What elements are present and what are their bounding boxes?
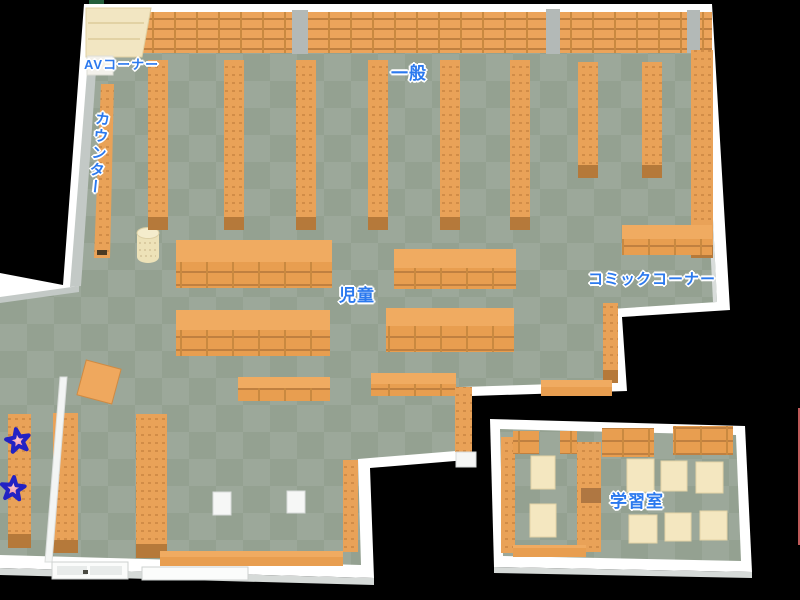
low-shelf — [176, 240, 332, 288]
bookshelf-row — [455, 387, 472, 452]
study-table — [661, 461, 687, 491]
bookshelf-row — [642, 62, 662, 178]
av-shelf — [86, 8, 151, 57]
label-av-corner: AVコーナー — [84, 54, 159, 73]
door-handle — [83, 570, 88, 574]
bookshelf-row — [501, 437, 515, 553]
low-shelf — [176, 310, 330, 356]
return-slot — [97, 250, 107, 255]
comic-shelf — [603, 303, 618, 383]
bookshelf-row — [136, 414, 167, 558]
study-table — [665, 513, 691, 541]
comic-shelf — [541, 380, 612, 396]
pillar — [546, 9, 560, 54]
bookshelf-row — [148, 60, 168, 230]
white-box — [213, 492, 231, 515]
bookshelf — [560, 431, 577, 454]
bookshelf — [673, 426, 733, 455]
bookshelf-row — [440, 60, 460, 230]
study-table — [531, 456, 555, 489]
bookshelf — [602, 428, 654, 457]
label-study-room: 学習室 — [610, 487, 664, 512]
bookshelf-row — [510, 60, 530, 230]
low-shelf — [160, 551, 343, 566]
low-shelf — [394, 249, 516, 289]
label-general: 一般 — [391, 59, 427, 84]
comic-shelf — [622, 225, 712, 255]
low-shelf — [238, 377, 330, 401]
bookshelf-row — [368, 60, 388, 230]
low-shelf — [513, 545, 586, 557]
floor-map-canvas — [0, 0, 800, 600]
top-wall-bookshelves — [133, 9, 712, 54]
study-table — [629, 515, 657, 543]
pillar — [292, 10, 308, 54]
pillar — [687, 10, 700, 53]
study-table — [696, 462, 723, 493]
bookshelf-row — [578, 62, 598, 178]
bookshelf — [513, 431, 539, 454]
label-children: 児童 — [339, 281, 375, 306]
white-box — [456, 452, 476, 467]
divider-shelf — [577, 442, 601, 552]
window-wall — [142, 567, 248, 580]
bookshelf-row — [224, 60, 244, 230]
bookshelf — [700, 12, 712, 53]
bookshelf — [133, 12, 292, 53]
display-cylinder — [137, 228, 159, 264]
label-comic-corner: コミックコーナー — [588, 268, 716, 289]
white-box — [287, 491, 305, 513]
study-table — [700, 511, 727, 540]
study-table — [530, 504, 556, 537]
av-shelf-line — [88, 22, 144, 24]
low-shelf — [386, 308, 514, 352]
av-shelf-line — [88, 38, 140, 40]
bookshelf-row — [343, 460, 358, 552]
entrance-door — [52, 562, 128, 579]
low-shelf — [371, 373, 456, 396]
library-floor-map: AVコーナー カウンター 一般 児童 コミックコーナー 学習室 — [0, 0, 800, 600]
bookshelf-row — [296, 60, 316, 230]
bookshelf — [560, 12, 687, 53]
bookshelf — [308, 12, 546, 53]
